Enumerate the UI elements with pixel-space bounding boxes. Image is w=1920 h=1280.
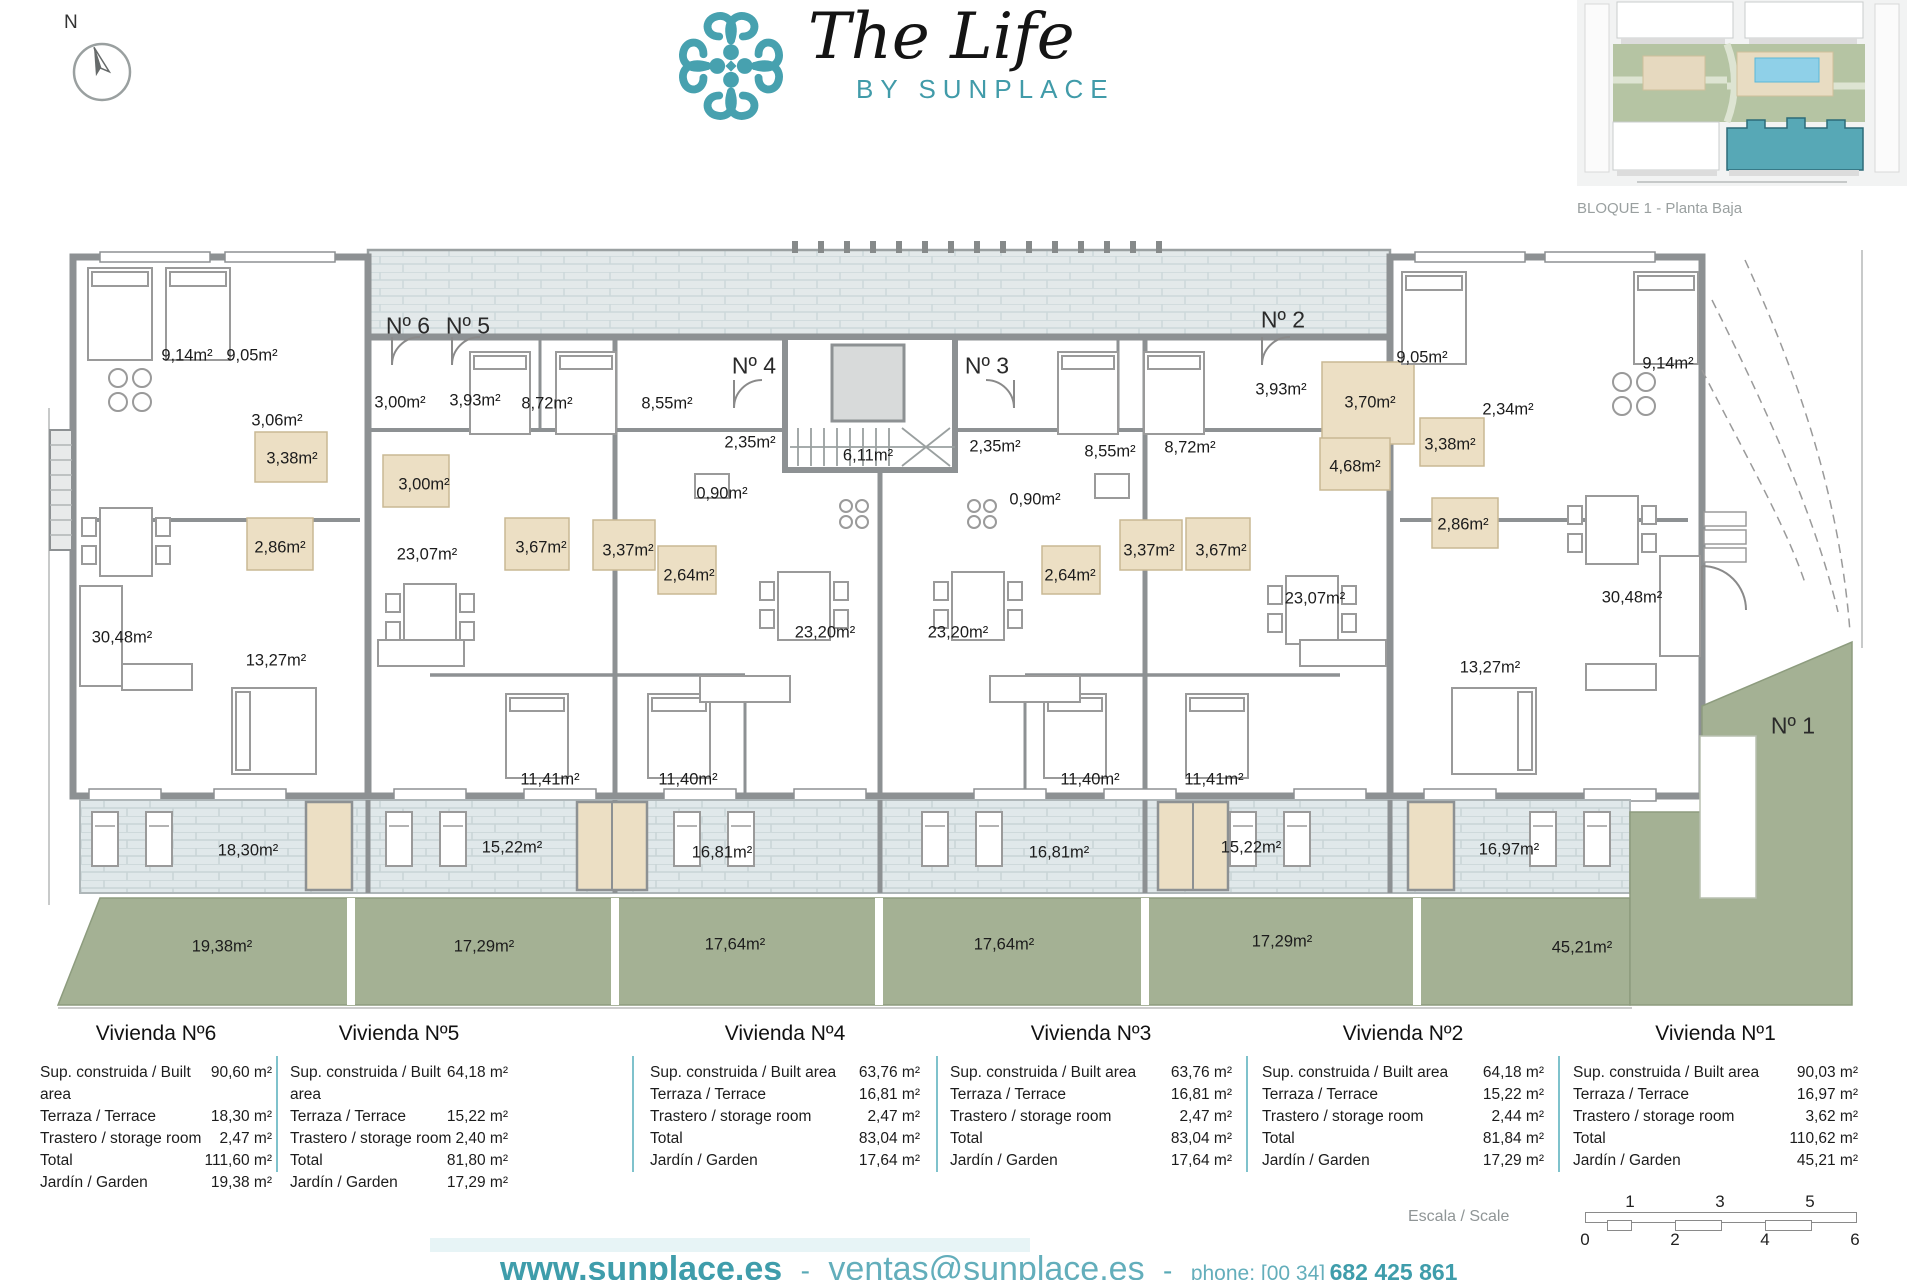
row-value: 17,29 m² [1483,1150,1544,1172]
vivienda-table: Vivienda Nº4 Sup. construida / Built are… [650,1022,920,1172]
row-label: Terraza / Terrace [290,1106,406,1128]
row-label: Terraza / Terrace [40,1106,156,1128]
footer-separator: - [801,1255,810,1280]
brand-subtitle: BY SUNPLACE [856,74,1115,105]
row-label: Total [950,1128,983,1150]
row-value: 2,47 m² [1179,1106,1232,1128]
row-value: 81,80 m² [447,1150,508,1172]
table-row: Jardín / Garden19,38 m² [40,1172,272,1194]
brand-title: The Life [808,4,1115,70]
row-label: Terraza / Terrace [950,1084,1066,1106]
row-value: 83,04 m² [1171,1128,1232,1150]
row-value: 17,64 m² [859,1150,920,1172]
row-label: Sup. construida / Built area [650,1062,836,1084]
row-label: Terraza / Terrace [1262,1084,1378,1106]
scale-bar-segment [1675,1220,1722,1231]
brand-logo: The Life BY SUNPLACE [672,4,1115,128]
row-label: Sup. construida / Built area [950,1062,1136,1084]
table-row: Terraza / Terrace15,22 m² [1262,1084,1544,1106]
row-label: Trastero / storage room [650,1106,811,1128]
site-plan-inset [1577,0,1907,198]
table-row: Trastero / storage room2,47 m² [40,1128,272,1150]
table-row: Terraza / Terrace16,81 m² [650,1084,920,1106]
table-row: Total110,62 m² [1573,1128,1858,1150]
scale-bar-segment [1607,1220,1632,1231]
vivienda-table: Vivienda Nº6 Sup. construida / Built are… [40,1022,272,1194]
footer-website-link[interactable]: www.sunplace.es [500,1250,782,1280]
row-label: Terraza / Terrace [650,1084,766,1106]
row-value: 90,60 m² [211,1062,272,1106]
vivienda-table: Vivienda Nº2 Sup. construida / Built are… [1262,1022,1544,1172]
row-label: Trastero / storage room [290,1128,451,1150]
table-divider [1558,1056,1560,1172]
table-title: Vivienda Nº5 [290,1022,508,1046]
scale-tick-label: 2 [1670,1230,1679,1250]
table-title: Vivienda Nº3 [950,1022,1232,1046]
row-value: 64,18 m² [1483,1062,1544,1084]
footer-phone[interactable]: 682 425 861 [1330,1259,1458,1280]
table-row: Jardín / Garden45,21 m² [1573,1150,1858,1172]
row-value: 63,76 m² [859,1062,920,1084]
scale-tick-label: 6 [1850,1230,1859,1250]
row-value: 16,81 m² [859,1084,920,1106]
scale-label: Escala / Scale [1408,1208,1509,1226]
row-label: Total [1573,1128,1606,1150]
table-row: Terraza / Terrace16,81 m² [950,1084,1232,1106]
footer-phone-label: phone: [00 34] [1191,1262,1325,1280]
table-row: Jardín / Garden17,64 m² [950,1150,1232,1172]
row-value: 81,84 m² [1483,1128,1544,1150]
row-label: Sup. construida / Built area [1573,1062,1759,1084]
row-value: 15,22 m² [447,1106,508,1128]
table-title: Vivienda Nº6 [40,1022,272,1046]
row-value: 17,64 m² [1171,1150,1232,1172]
table-row: Jardín / Garden17,29 m² [1262,1150,1544,1172]
row-value: 110,62 m² [1789,1128,1858,1150]
scale-tick-label: 1 [1625,1192,1634,1212]
row-label: Jardín / Garden [650,1150,758,1172]
row-label: Sup. construida / Built area [290,1062,447,1106]
scale-tick-label: 3 [1715,1192,1724,1212]
row-label: Jardín / Garden [290,1172,398,1194]
table-divider [632,1056,634,1172]
table-row: Sup. construida / Built area63,76 m² [650,1062,920,1084]
table-row: Terraza / Terrace15,22 m² [290,1106,508,1128]
brand-glyph-icon [672,4,790,128]
row-label: Terraza / Terrace [1573,1084,1689,1106]
site-plan-image [1577,0,1907,198]
table-title: Vivienda Nº1 [1573,1022,1858,1046]
footer-email-link[interactable]: ventas@sunplace.es [828,1250,1144,1280]
row-label: Trastero / storage room [40,1128,201,1150]
table-row: Sup. construida / Built area64,18 m² [290,1062,508,1106]
row-value: 18,30 m² [211,1106,272,1128]
table-row: Total81,80 m² [290,1150,508,1172]
row-value: 83,04 m² [859,1128,920,1150]
row-label: Total [40,1150,73,1172]
row-label: Jardín / Garden [1573,1150,1681,1172]
row-value: 2,47 m² [867,1106,920,1128]
table-divider [276,1056,278,1172]
scale-tick-label: 5 [1805,1192,1814,1212]
table-row: Jardín / Garden17,29 m² [290,1172,508,1194]
table-divider [1246,1056,1248,1172]
table-row: Total81,84 m² [1262,1128,1544,1150]
table-row: Trastero / storage room3,62 m² [1573,1106,1858,1128]
row-value: 15,22 m² [1483,1084,1544,1106]
compass-icon [46,10,156,120]
row-label: Sup. construida / Built area [40,1062,211,1106]
row-label: Trastero / storage room [950,1106,1111,1128]
scale-bar-segment [1765,1220,1812,1231]
table-row: Terraza / Terrace16,97 m² [1573,1084,1858,1106]
row-value: 2,40 m² [455,1128,508,1150]
table-title: Vivienda Nº2 [1262,1022,1544,1046]
table-row: Sup. construida / Built area90,60 m² [40,1062,272,1106]
table-row: Sup. construida / Built area63,76 m² [950,1062,1232,1084]
row-value: 63,76 m² [1171,1062,1232,1084]
row-label: Trastero / storage room [1573,1106,1734,1128]
table-row: Trastero / storage room2,47 m² [650,1106,920,1128]
row-label: Trastero / storage room [1262,1106,1423,1128]
vivienda-table: Vivienda Nº5 Sup. construida / Built are… [290,1022,508,1194]
row-value: 2,44 m² [1491,1106,1544,1128]
row-label: Sup. construida / Built area [1262,1062,1448,1084]
footer: www.sunplace.es - ventas@sunplace.es - p… [500,1250,1457,1280]
vivienda-table: Vivienda Nº1 Sup. construida / Built are… [1573,1022,1858,1172]
table-row: Sup. construida / Built area90,03 m² [1573,1062,1858,1084]
row-label: Total [650,1128,683,1150]
footer-separator: - [1163,1255,1172,1280]
north-compass: N [46,10,156,120]
vivienda-table: Vivienda Nº3 Sup. construida / Built are… [950,1022,1232,1172]
table-row: Sup. construida / Built area64,18 m² [1262,1062,1544,1084]
row-label: Jardín / Garden [950,1150,1058,1172]
row-label: Jardín / Garden [40,1172,148,1194]
row-value: 3,62 m² [1805,1106,1858,1128]
row-value: 2,47 m² [219,1128,272,1150]
table-row: Trastero / storage room2,47 m² [950,1106,1232,1128]
inset-caption: BLOQUE 1 - Planta Baja [1577,200,1907,217]
row-value: 90,03 m² [1797,1062,1858,1084]
scale-tick-label: 0 [1580,1230,1589,1250]
table-divider [936,1056,938,1172]
row-value: 16,81 m² [1171,1084,1232,1106]
row-value: 45,21 m² [1797,1150,1858,1172]
table-row: Jardín / Garden17,64 m² [650,1150,920,1172]
table-row: Total83,04 m² [950,1128,1232,1150]
compass-north-label: N [64,12,78,34]
row-label: Total [1262,1128,1295,1150]
scale-tick-label: 4 [1760,1230,1769,1250]
row-label: Jardín / Garden [1262,1150,1370,1172]
row-label: Total [290,1150,323,1172]
table-row: Trastero / storage room2,44 m² [1262,1106,1544,1128]
row-value: 19,38 m² [211,1172,272,1194]
row-value: 16,97 m² [1797,1084,1858,1106]
table-title: Vivienda Nº4 [650,1022,920,1046]
table-row: Terraza / Terrace18,30 m² [40,1106,272,1128]
row-value: 111,60 m² [205,1150,273,1172]
table-row: Trastero / storage room2,40 m² [290,1128,508,1150]
row-value: 64,18 m² [447,1062,508,1106]
row-value: 17,29 m² [447,1172,508,1194]
table-row: Total111,60 m² [40,1150,272,1172]
floorplan-page: N [0,0,1920,1280]
table-row: Total83,04 m² [650,1128,920,1150]
